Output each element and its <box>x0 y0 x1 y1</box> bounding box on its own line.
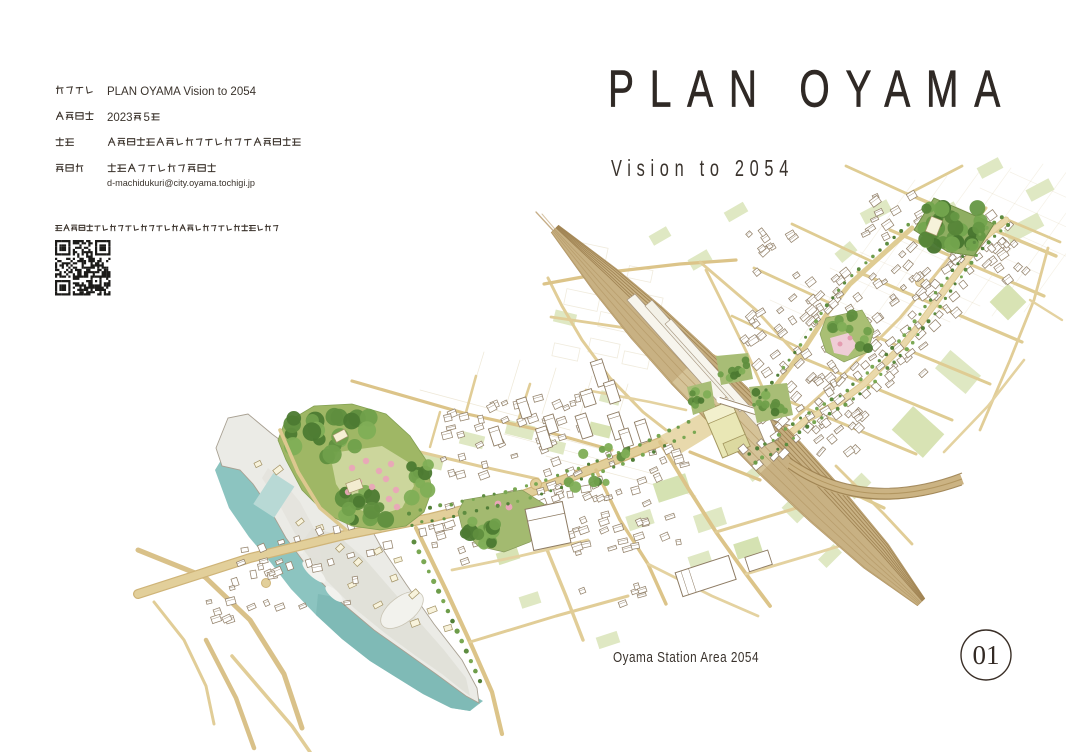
svg-text:2023: 2023 <box>107 112 133 124</box>
svg-text:Vision to 2054: Vision to 2054 <box>611 155 794 181</box>
svg-text:d-machidukuri@city.oyama.tochi: d-machidukuri@city.oyama.tochigi.jp <box>107 178 255 188</box>
svg-text:PLAN OYAMA: PLAN OYAMA <box>608 61 1016 119</box>
svg-text:5: 5 <box>144 112 150 124</box>
svg-text:PLAN OYAMA Vision to 2054: PLAN OYAMA Vision to 2054 <box>107 86 257 98</box>
svg-text:01: 01 <box>973 640 1000 670</box>
svg-text:Oyama Station Area 2054: Oyama Station Area 2054 <box>613 650 759 666</box>
